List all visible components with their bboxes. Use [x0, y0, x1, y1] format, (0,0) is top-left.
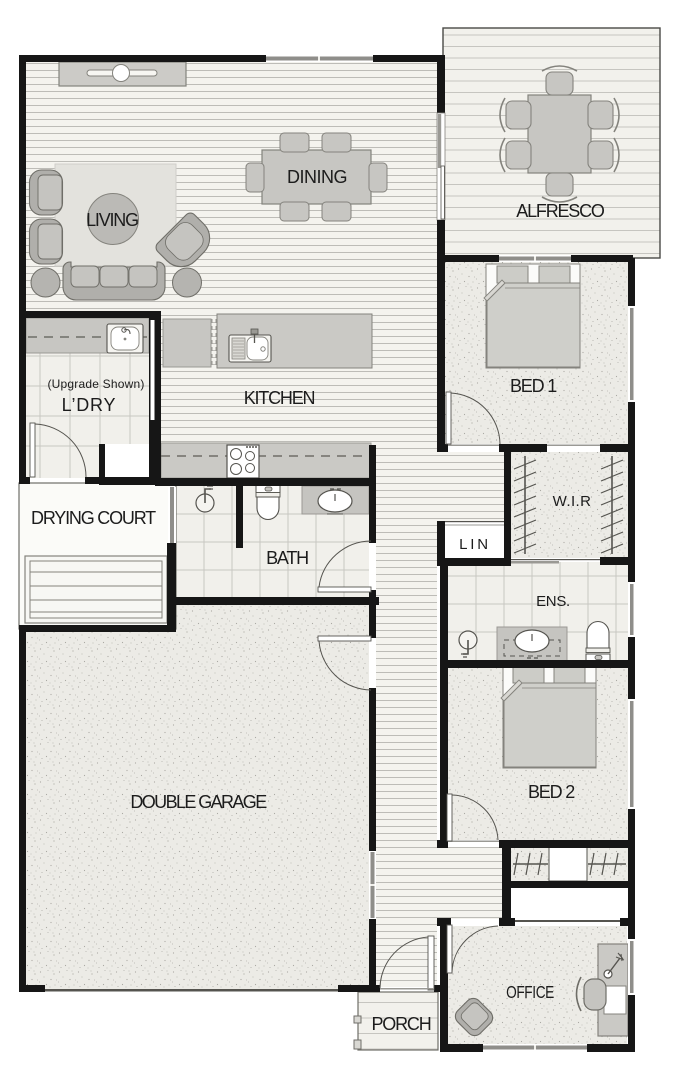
svg-text:KITCHEN: KITCHEN — [244, 388, 315, 408]
svg-text:BATH: BATH — [266, 548, 308, 568]
svg-text:LIN: LIN — [459, 536, 491, 553]
svg-text:ALFRESCO: ALFRESCO — [516, 201, 605, 221]
svg-text:PORCH: PORCH — [371, 1014, 430, 1034]
svg-text:(Upgrade Shown): (Upgrade Shown) — [47, 377, 144, 391]
svg-text:BED 1: BED 1 — [510, 376, 557, 396]
svg-text:ENS.: ENS. — [536, 593, 570, 610]
svg-text:DINING: DINING — [287, 167, 347, 187]
svg-text:L’DRY: L’DRY — [62, 395, 117, 415]
svg-text:DRYING COURT: DRYING COURT — [31, 508, 156, 528]
svg-text:DOUBLE GARAGE: DOUBLE GARAGE — [130, 792, 267, 812]
svg-text:W.I.R: W.I.R — [553, 493, 592, 510]
svg-text:LIVING: LIVING — [86, 210, 138, 230]
svg-text:OFFICE: OFFICE — [506, 983, 554, 1002]
svg-text:BED 2: BED 2 — [528, 782, 575, 802]
